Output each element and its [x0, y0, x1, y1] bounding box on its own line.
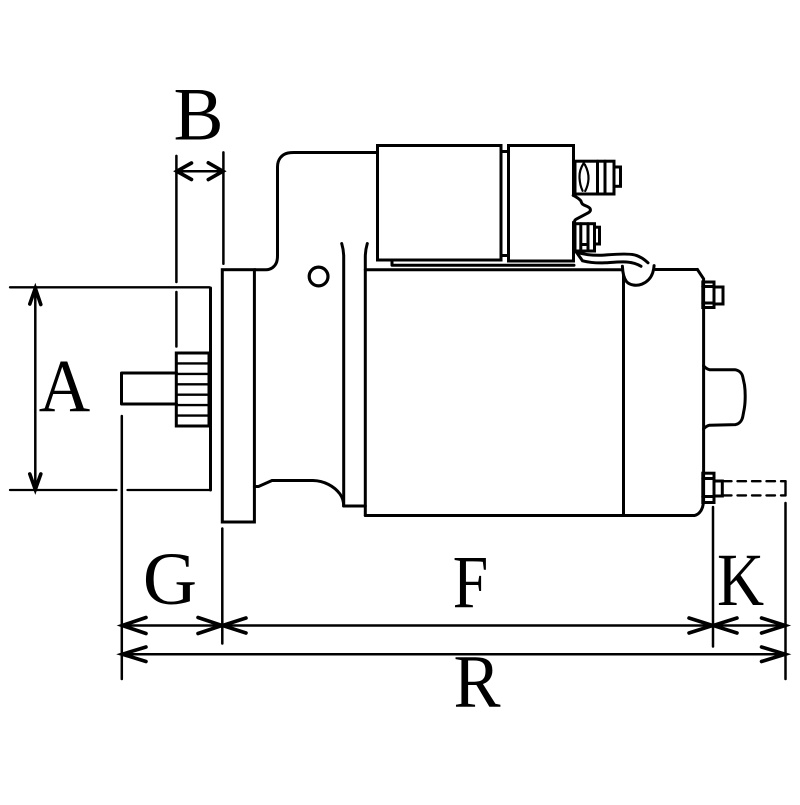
svg-text:G: G [143, 538, 197, 621]
svg-text:R: R [453, 640, 500, 723]
svg-text:A: A [39, 344, 91, 427]
svg-text:F: F [453, 541, 488, 624]
svg-text:K: K [717, 539, 764, 622]
svg-text:B: B [173, 74, 223, 157]
